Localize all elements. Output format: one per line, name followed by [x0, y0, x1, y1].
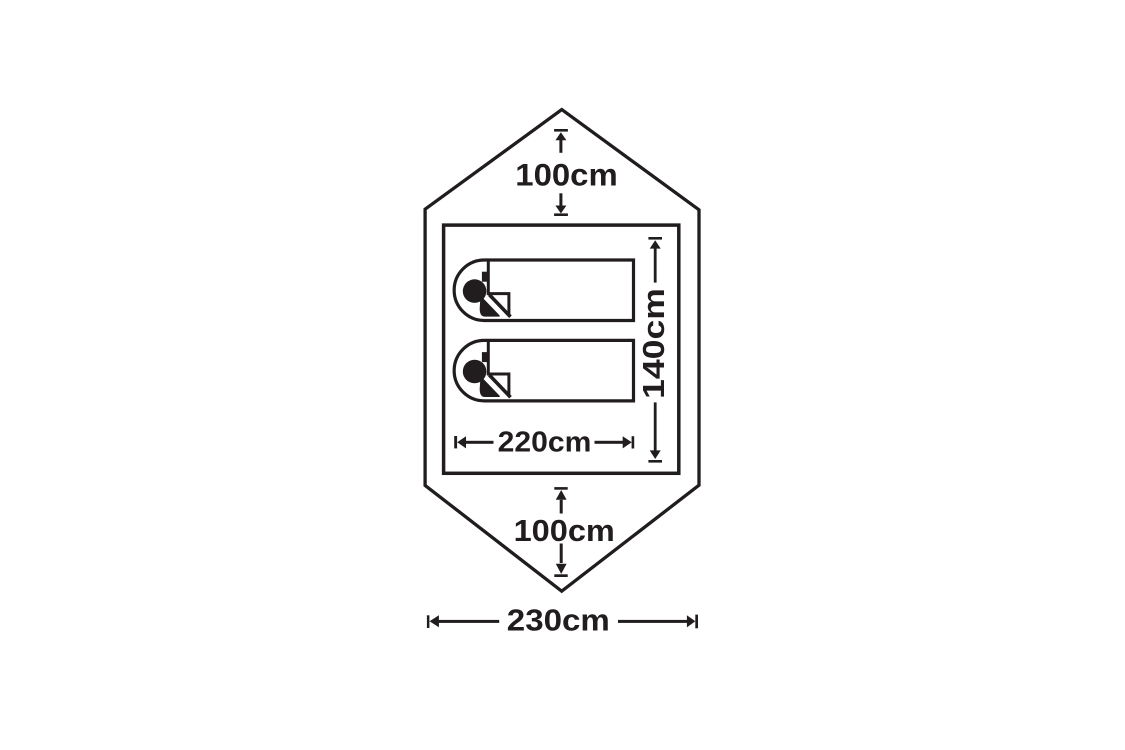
svg-text:220cm: 220cm	[498, 427, 592, 458]
svg-text:140cm: 140cm	[637, 288, 671, 399]
svg-text:100cm: 100cm	[515, 157, 617, 192]
svg-text:100cm: 100cm	[514, 514, 615, 548]
svg-text:230cm: 230cm	[507, 603, 610, 638]
